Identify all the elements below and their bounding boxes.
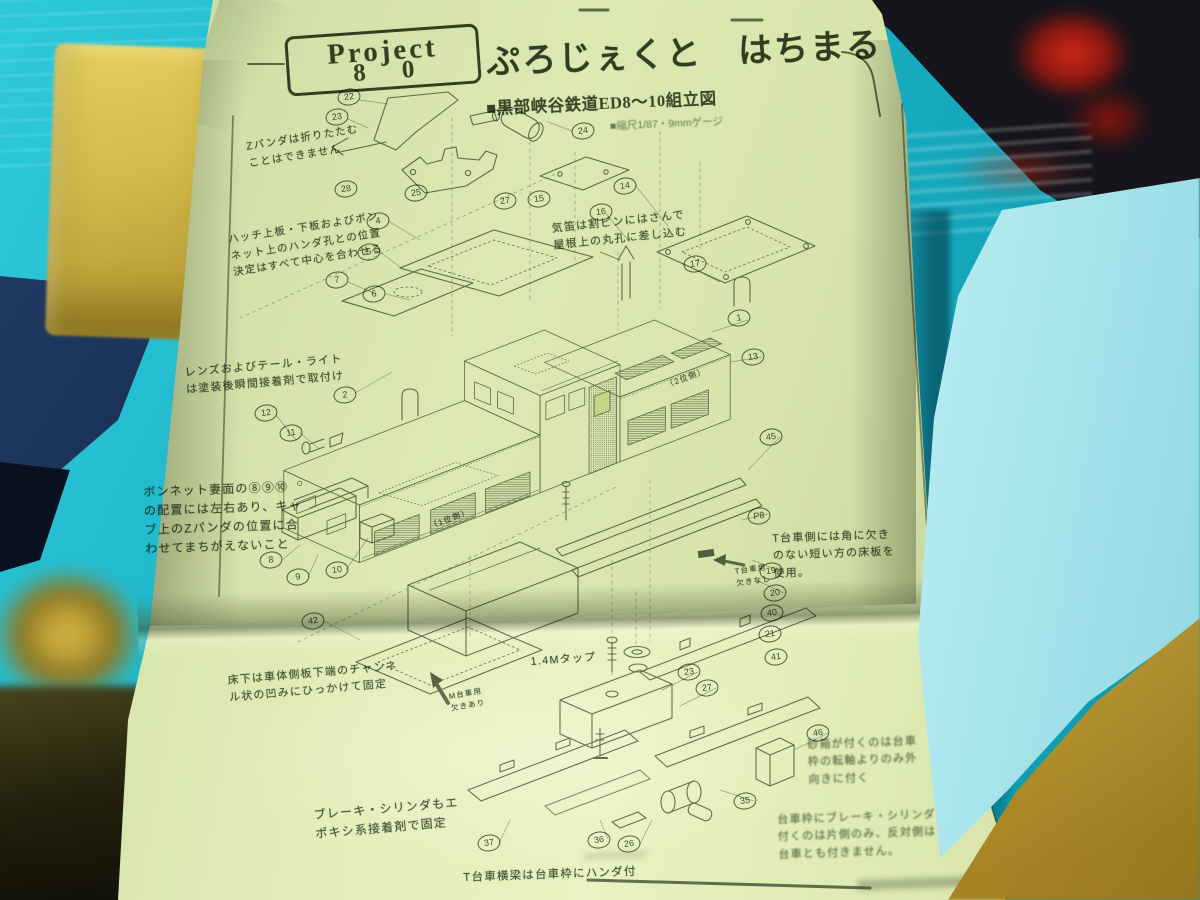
part-number-callout: 13 <box>740 347 765 367</box>
part-number-callout: 37 <box>476 833 501 853</box>
part-number-callout: 24 <box>570 121 595 141</box>
part-number-callout: 1 <box>726 308 751 328</box>
part-number-callout: 22 <box>336 87 361 107</box>
part-number-callout: 21 <box>757 624 782 644</box>
part-number-callout: P8 <box>746 506 771 526</box>
part-number-callout: 5 <box>356 242 381 262</box>
part-number-callout: 9 <box>285 567 310 587</box>
part-number-callout: 12 <box>253 403 278 423</box>
part-number-callout: 41 <box>763 647 788 667</box>
part-number-callout: 8 <box>258 550 283 570</box>
part-number-callout: 20 <box>762 583 787 603</box>
part-number-callout: 36 <box>586 830 611 850</box>
part-number-callout: 35 <box>732 791 757 811</box>
part-number-callout: 45 <box>758 427 783 447</box>
part-number-callout: 28 <box>333 179 358 199</box>
part-number-callout: 2 <box>332 385 357 405</box>
part-number-callout: 23 <box>324 107 349 127</box>
part-number-callout: 10 <box>324 560 349 580</box>
part-number-callout: 23 <box>676 662 701 682</box>
part-number-callout: 27 <box>492 191 517 211</box>
part-number-callout: 19 <box>758 561 783 581</box>
part-number-callout: 6 <box>361 284 386 304</box>
part-number-callout: 4 <box>365 211 390 231</box>
photo-scene: Project 8 0 ぷろじぇくと はちまる ■黒部峡谷鉄道ED8～10組立図… <box>0 0 1200 900</box>
part-number-callout: 27 <box>694 678 719 698</box>
part-number-callout: 40 <box>759 603 784 623</box>
part-number-callout: 25 <box>403 183 428 203</box>
part-number-callout: 14 <box>612 176 637 196</box>
part-number-callout: 42 <box>300 611 325 631</box>
part-number-callout: 16 <box>588 202 613 222</box>
part-number-callout: 11 <box>278 423 303 443</box>
part-number-callout: 17 <box>682 254 707 274</box>
part-number-callout: 46 <box>805 723 830 743</box>
part-number-callout: 15 <box>526 189 551 209</box>
part-number-callout: 7 <box>324 270 349 290</box>
